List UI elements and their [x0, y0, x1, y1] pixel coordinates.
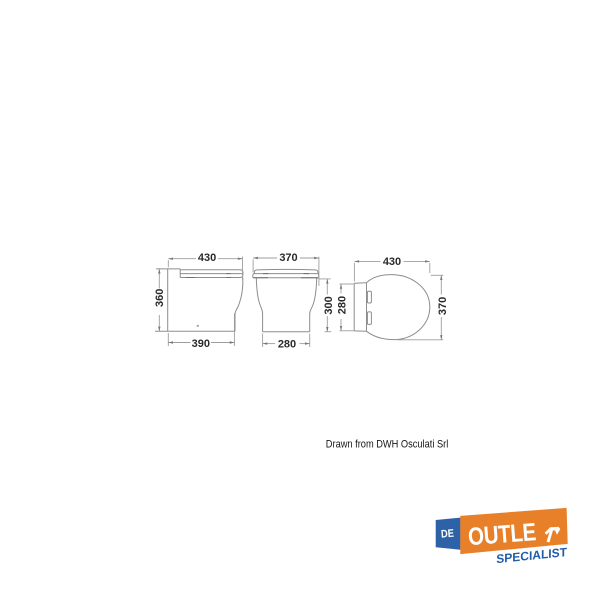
svg-text:430: 430	[198, 252, 216, 264]
svg-text:280: 280	[337, 296, 349, 314]
svg-text:DE: DE	[441, 528, 455, 541]
svg-text:430: 430	[383, 256, 401, 268]
svg-text:370: 370	[279, 252, 297, 264]
svg-text:370: 370	[437, 297, 449, 315]
svg-text:280: 280	[278, 338, 296, 350]
svg-text:300: 300	[323, 296, 335, 314]
svg-text:360: 360	[154, 289, 166, 307]
svg-text:OUTLE: OUTLE	[467, 517, 537, 550]
svg-text:390: 390	[192, 338, 210, 350]
svg-text:Drawn from DWH Osculati Srl: Drawn from DWH Osculati Srl	[326, 439, 449, 451]
